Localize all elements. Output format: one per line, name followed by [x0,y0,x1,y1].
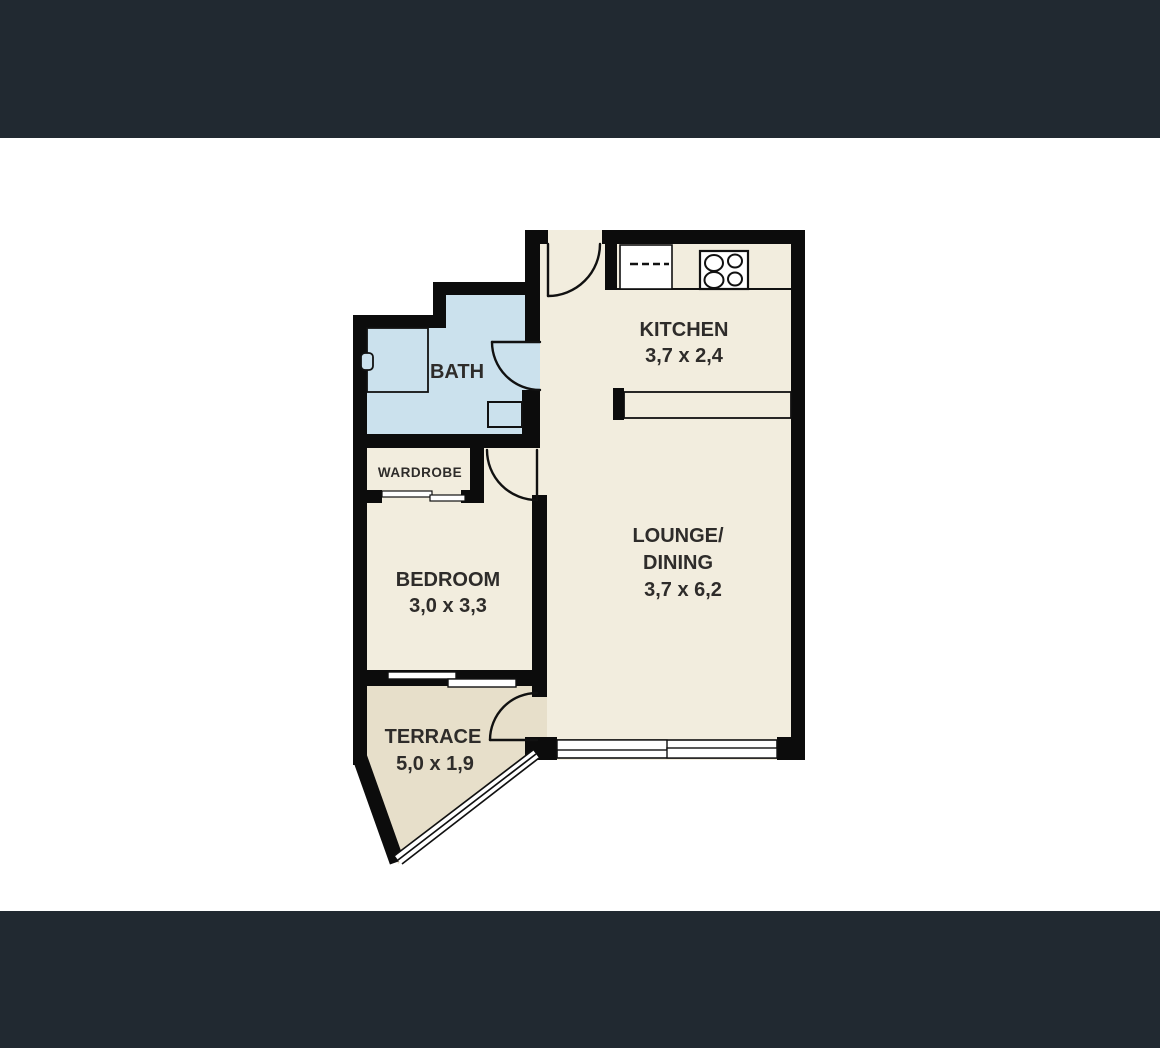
wardrobe-sliding-door [430,495,465,501]
lounge-dimensions: 3,7 x 6,2 [644,579,722,601]
bedroom-window [448,679,516,687]
kitchen-label: KITCHEN [640,319,729,341]
wall [605,230,617,290]
wardrobe-label: WARDROBE [378,465,462,480]
wall [777,737,805,760]
wall [532,495,547,697]
wall [433,282,540,295]
bath-label: BATH [430,361,484,383]
fridge-icon [620,245,672,289]
wall [353,434,540,448]
wardrobe-sliding-door [382,491,432,497]
screenshot-canvas: KITCHEN 3,7 x 2,4 LOUNGE/ DINING 3,7 x 6… [0,0,1160,1048]
lounge-window-panel [557,740,667,750]
lounge-label-line2: DINING [643,552,713,574]
bathtub-icon [367,328,428,392]
room-lounge-floor [525,230,805,760]
bathtub-tap-icon [361,353,373,370]
vanity-icon [488,402,522,427]
bedroom-dimensions: 3,0 x 3,3 [409,595,487,617]
wall [353,315,367,765]
floor-plan: KITCHEN 3,7 x 2,4 LOUNGE/ DINING 3,7 x 6… [0,0,1160,1048]
lounge-window-panel [667,748,777,758]
kitchen-bench [624,392,791,418]
wall [602,230,805,244]
kitchen-bench-stub [613,388,624,420]
bottom-bar [0,911,1160,1048]
bedroom-label: BEDROOM [396,569,500,591]
wall [357,490,382,503]
bedroom-window [388,672,456,679]
terrace-label: TERRACE [385,726,482,748]
terrace-dimensions: 5,0 x 1,9 [396,753,474,775]
wall [522,390,540,438]
lounge-label-line1: LOUNGE/ [632,525,724,547]
wall [791,230,805,760]
kitchen-dimensions: 3,7 x 2,4 [645,345,724,367]
